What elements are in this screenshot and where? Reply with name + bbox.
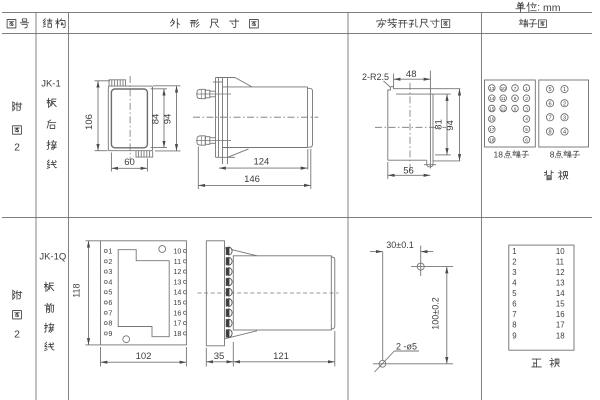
- svg-text:14: 14: [489, 96, 495, 101]
- svg-text:15: 15: [489, 106, 495, 111]
- svg-text:7: 7: [548, 115, 551, 121]
- svg-text:16: 16: [489, 117, 495, 122]
- svg-text:4: 4: [108, 277, 112, 286]
- svg-text:2: 2: [525, 96, 528, 101]
- svg-text:35: 35: [214, 351, 225, 362]
- svg-text:12: 12: [501, 106, 507, 111]
- svg-text:1: 1: [108, 247, 112, 256]
- svg-text:6: 6: [108, 298, 112, 307]
- svg-text:81: 81: [434, 119, 445, 130]
- svg-text:15: 15: [173, 298, 181, 307]
- svg-text:18: 18: [489, 138, 495, 143]
- svg-text:6: 6: [525, 138, 528, 143]
- svg-text:100±0.2: 100±0.2: [430, 297, 440, 329]
- svg-text:17: 17: [489, 127, 495, 132]
- svg-text:13: 13: [173, 277, 181, 286]
- svg-text:2: 2: [563, 101, 566, 107]
- svg-text:6: 6: [548, 101, 551, 107]
- svg-text:3: 3: [108, 267, 112, 276]
- svg-text:2: 2: [14, 141, 20, 153]
- svg-text:17: 17: [556, 321, 565, 330]
- svg-text:13: 13: [556, 279, 565, 288]
- svg-text:8: 8: [512, 321, 516, 330]
- svg-text:3: 3: [512, 268, 516, 277]
- svg-text:121: 121: [273, 351, 289, 362]
- svg-text:5: 5: [512, 289, 517, 298]
- svg-text:4: 4: [525, 117, 528, 122]
- svg-text:146: 146: [244, 174, 260, 185]
- svg-text:106: 106: [84, 114, 95, 130]
- svg-text:94: 94: [445, 120, 456, 131]
- svg-text:1: 1: [512, 247, 516, 256]
- svg-text:1: 1: [563, 87, 566, 93]
- svg-text:16: 16: [556, 310, 565, 319]
- svg-text:5: 5: [108, 288, 112, 297]
- svg-text:JK-1Q: JK-1Q: [39, 252, 66, 263]
- svg-text:3: 3: [563, 115, 566, 121]
- svg-text:7: 7: [108, 308, 112, 317]
- svg-text:5: 5: [548, 87, 551, 93]
- svg-text:124: 124: [253, 157, 269, 168]
- svg-text:15: 15: [556, 300, 565, 309]
- svg-text:4: 4: [563, 130, 566, 136]
- svg-text:2-R2.5: 2-R2.5: [362, 72, 389, 82]
- svg-text:11: 11: [556, 258, 564, 267]
- svg-text:84: 84: [151, 114, 162, 125]
- svg-text:11: 11: [174, 257, 181, 266]
- svg-text:18: 18: [494, 149, 504, 159]
- svg-text:30±0.1: 30±0.1: [386, 240, 413, 250]
- svg-text:7: 7: [514, 86, 517, 91]
- svg-text:102: 102: [136, 351, 152, 362]
- svg-text:10: 10: [501, 86, 507, 91]
- svg-text:9: 9: [108, 329, 112, 338]
- svg-text:60: 60: [124, 157, 135, 168]
- svg-text:94: 94: [163, 114, 174, 125]
- svg-text:7: 7: [512, 310, 516, 319]
- svg-text:mm: mm: [543, 2, 561, 14]
- svg-text:4: 4: [512, 279, 517, 288]
- svg-text:1: 1: [525, 86, 528, 91]
- svg-text:6: 6: [512, 300, 516, 309]
- svg-text:12: 12: [556, 268, 565, 277]
- svg-text:18: 18: [173, 329, 181, 338]
- svg-text:10: 10: [173, 247, 181, 256]
- svg-text:48: 48: [406, 69, 417, 80]
- svg-text:8: 8: [550, 149, 555, 159]
- svg-text:2: 2: [512, 258, 516, 267]
- svg-text:14: 14: [173, 288, 181, 297]
- svg-text:2: 2: [108, 257, 112, 266]
- svg-text:2: 2: [14, 328, 20, 340]
- svg-text:17: 17: [173, 319, 181, 328]
- svg-text:8: 8: [108, 319, 112, 328]
- svg-text:5: 5: [525, 127, 528, 132]
- svg-text:8: 8: [514, 96, 517, 101]
- svg-text:118: 118: [71, 283, 81, 297]
- svg-text:10: 10: [556, 247, 565, 256]
- svg-text:9: 9: [512, 331, 516, 340]
- svg-text:3: 3: [525, 106, 528, 111]
- svg-text::: :: [537, 3, 540, 14]
- svg-text:12: 12: [173, 267, 181, 276]
- svg-text:18: 18: [556, 331, 565, 340]
- svg-text:11: 11: [501, 96, 506, 101]
- svg-text:8: 8: [548, 130, 551, 136]
- svg-text:9: 9: [514, 106, 517, 111]
- svg-text:13: 13: [489, 86, 495, 91]
- svg-text:56: 56: [403, 165, 414, 176]
- svg-text:2 -ø5: 2 -ø5: [396, 342, 417, 352]
- svg-text:JK-1: JK-1: [41, 79, 61, 90]
- svg-text:16: 16: [173, 308, 181, 317]
- svg-text:14: 14: [556, 289, 565, 298]
